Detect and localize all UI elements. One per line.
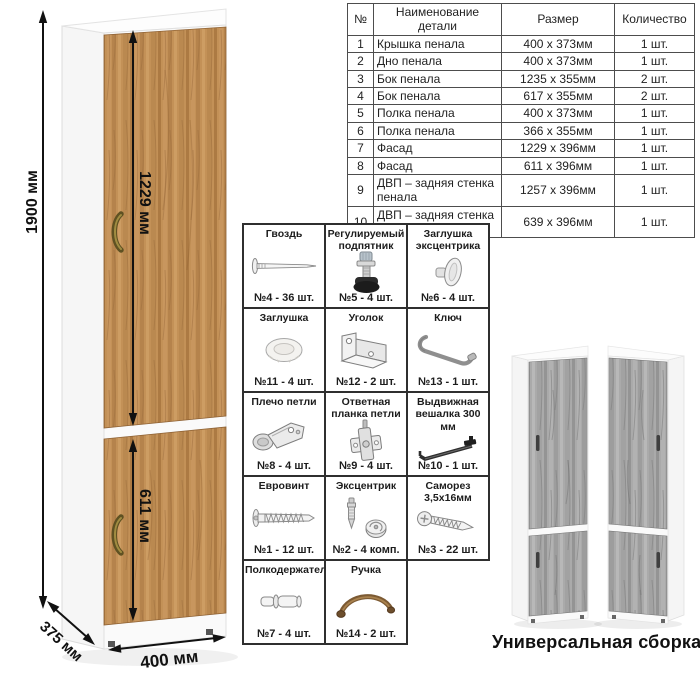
hardware-grid: Гвоздь №4 - 36 шт. Регулируемый подпятни…	[242, 223, 490, 645]
part-qty: 2 шт.	[615, 87, 695, 104]
hardware-name: Ручка	[327, 564, 405, 576]
confirmat-screw-icon	[247, 503, 321, 533]
nail-icon	[247, 253, 321, 279]
hardware-name: Плечо петли	[245, 396, 323, 408]
corner-bracket-icon	[329, 329, 403, 371]
gray-door-handle	[536, 435, 540, 451]
part-size: 639 х 396мм	[502, 206, 615, 238]
hardware-item: Ответная планка петли №9 - 4 шт.	[326, 393, 408, 477]
hardware-count: №12 - 2 шт.	[336, 376, 396, 389]
hardware-name: Саморез 3,5х16мм	[409, 480, 487, 505]
table-row: 3Бок пенала1235 х 355мм2 шт.	[348, 70, 695, 87]
gray-door-bottom	[609, 531, 667, 616]
hardware-name: Уголок	[327, 312, 405, 324]
assembly-caption: Универсальная сборка.	[492, 632, 700, 653]
part-name: Полка пенала	[374, 105, 502, 122]
table-row: 2Дно пенала400 х 373мм1 шт.	[348, 53, 695, 70]
shelf-pin-icon	[247, 588, 321, 616]
part-qty: 1 шт.	[615, 35, 695, 52]
hardware-count: №14 - 2 шт.	[336, 628, 396, 641]
table-header-row: № Наименование детали Размер Количество	[348, 4, 695, 36]
part-qty: 1 шт.	[615, 206, 695, 238]
part-num: 8	[348, 157, 374, 174]
cabinet-foot	[206, 629, 213, 635]
part-name: Дно пенала	[374, 53, 502, 70]
hardware-count: №3 - 22 шт.	[418, 544, 478, 557]
cabinet-illustration: 1900 мм 1229 мм 611 мм 375 мм 400 мм	[0, 0, 242, 683]
cap-icon	[247, 332, 321, 368]
hardware-name: Ключ	[409, 312, 487, 324]
door-bottom	[104, 427, 226, 625]
part-size: 611 х 396мм	[502, 157, 615, 174]
hardware-count: №9 - 4 шт.	[339, 460, 393, 473]
hardware-count: №5 - 4 шт.	[339, 292, 393, 305]
part-name: Бок пенала	[374, 87, 502, 104]
col-header-num: №	[348, 4, 374, 36]
hardware-item: Регулируемый подпятник №5 - 4 шт.	[326, 225, 408, 309]
table-row: 1Крышка пенала400 х 373мм1 шт.	[348, 35, 695, 52]
table-row: 7Фасад1229 х 396мм1 шт.	[348, 140, 695, 157]
gray-cabinet-right	[594, 346, 684, 629]
hinge-arm-icon	[247, 413, 321, 455]
hardware-name: Заглушка	[245, 312, 323, 324]
gray-door-bottom	[529, 531, 587, 616]
hardware-count: №4 - 36 шт.	[254, 292, 314, 305]
hardware-name: Ответная планка петли	[327, 396, 405, 421]
cabinet-foot	[108, 641, 115, 647]
table-row: 6Полка пенала366 х 355мм1 шт.	[348, 122, 695, 139]
hardware-name: Полкодержатель	[245, 564, 323, 576]
part-num: 9	[348, 174, 374, 206]
part-size: 366 х 355мм	[502, 122, 615, 139]
dim-door-bottom: 611 мм	[136, 489, 153, 543]
hardware-item: Заглушка №11 - 4 шт.	[244, 309, 326, 393]
part-num: 7	[348, 140, 374, 157]
part-qty: 1 шт.	[615, 174, 695, 206]
part-size: 400 х 373мм	[502, 53, 615, 70]
table-row: 5Полка пенала400 х 373мм1 шт.	[348, 105, 695, 122]
dim-door-top: 1229 мм	[136, 171, 153, 235]
hardware-count: №7 - 4 шт.	[257, 628, 311, 641]
part-name: Бок пенала	[374, 70, 502, 87]
height-total-arrow	[39, 10, 47, 609]
parts-table: № Наименование детали Размер Количество …	[347, 3, 695, 238]
hardware-grid-empty-cell	[408, 561, 490, 645]
hardware-count: №11 - 4 шт.	[254, 376, 314, 389]
hardware-count: №2 - 4 комп.	[332, 544, 399, 557]
hardware-item: Ключ №13 - 1 шт.	[408, 309, 490, 393]
col-header-name: Наименование детали	[374, 4, 502, 36]
gray-door-handle	[657, 435, 661, 451]
col-header-qty: Количество	[615, 4, 695, 36]
cam-cap-icon	[411, 254, 485, 290]
gray-cabinet-left	[512, 346, 602, 629]
hardware-count: №13 - 1 шт.	[418, 376, 478, 389]
dim-height-total: 1900 мм	[24, 170, 41, 234]
hardware-name: Гвоздь	[245, 228, 323, 240]
part-num: 5	[348, 105, 374, 122]
part-num: 3	[348, 70, 374, 87]
part-name: Крышка пенала	[374, 35, 502, 52]
part-size: 1257 х 396мм	[502, 174, 615, 206]
pullout-hanger-icon	[411, 432, 485, 462]
door-top	[104, 27, 226, 428]
part-name: Полка пенала	[374, 122, 502, 139]
hardware-count: №1 - 12 шт.	[254, 544, 314, 557]
part-size: 400 х 373мм	[502, 105, 615, 122]
hardware-item: Эксцентрик №2 - 4 комп.	[326, 477, 408, 561]
cam-lock-icon	[329, 496, 403, 540]
part-num: 2	[348, 53, 374, 70]
hardware-name: Регулируемый подпятник	[327, 228, 405, 253]
hardware-name: Заглушка эксцентрика	[409, 228, 487, 253]
adjustable-foot-icon	[329, 250, 403, 294]
hardware-item: Плечо петли №8 - 4 шт.	[244, 393, 326, 477]
assembly-sheet: 1900 мм 1229 мм 611 мм 375 мм 400 мм	[0, 0, 700, 683]
part-qty: 1 шт.	[615, 157, 695, 174]
hardware-item: Уголок №12 - 2 шт.	[326, 309, 408, 393]
part-qty: 1 шт.	[615, 140, 695, 157]
table-row: 8Фасад611 х 396мм1 шт.	[348, 157, 695, 174]
gray-door-handle	[536, 552, 540, 568]
hardware-item: Гвоздь №4 - 36 шт.	[244, 225, 326, 309]
part-qty: 1 шт.	[615, 105, 695, 122]
part-name: Фасад	[374, 140, 502, 157]
hardware-item: Полкодержатель №7 - 4 шт.	[244, 561, 326, 645]
gray-door-handle	[657, 552, 661, 568]
hardware-name: Евровинт	[245, 480, 323, 492]
table-row: 9ДВП – задняя стенка пенала1257 х 396мм1…	[348, 174, 695, 206]
hardware-name: Выдвижная вешалка 300 мм	[409, 396, 487, 433]
self-tapping-screw-icon	[411, 506, 485, 542]
hardware-item: Выдвижная вешалка 300 мм №10 - 1 шт.	[408, 393, 490, 477]
hardware-count: №8 - 4 шт.	[257, 460, 311, 473]
part-num: 6	[348, 122, 374, 139]
part-num: 1	[348, 35, 374, 52]
hinge-plate-icon	[329, 418, 403, 462]
part-size: 1235 х 355мм	[502, 70, 615, 87]
part-qty: 1 шт.	[615, 122, 695, 139]
part-size: 400 х 373мм	[502, 35, 615, 52]
table-row: 4Бок пенала617 х 355мм2 шт.	[348, 87, 695, 104]
part-qty: 1 шт.	[615, 53, 695, 70]
wardrobe-side-panel	[62, 26, 104, 649]
handle-icon	[329, 583, 403, 621]
part-num: 4	[348, 87, 374, 104]
part-size: 1229 х 396мм	[502, 140, 615, 157]
hardware-count: №10 - 1 шт.	[418, 460, 478, 473]
hardware-name: Эксцентрик	[327, 480, 405, 492]
hardware-item: Саморез 3,5х16мм №3 - 22 шт.	[408, 477, 490, 561]
part-qty: 2 шт.	[615, 70, 695, 87]
hardware-item: Евровинт №1 - 12 шт.	[244, 477, 326, 561]
part-name: Фасад	[374, 157, 502, 174]
col-header-size: Размер	[502, 4, 615, 36]
key-icon	[411, 331, 485, 369]
hardware-item: Заглушка эксцентрика №6 - 4 шт.	[408, 225, 490, 309]
wardrobe	[62, 9, 226, 649]
gray-cabinets-illustration	[498, 340, 698, 632]
hardware-item: Ручка №14 - 2 шт.	[326, 561, 408, 645]
hardware-count: №6 - 4 шт.	[421, 292, 475, 305]
part-size: 617 х 355мм	[502, 87, 615, 104]
part-name: ДВП – задняя стенка пенала	[374, 174, 502, 206]
